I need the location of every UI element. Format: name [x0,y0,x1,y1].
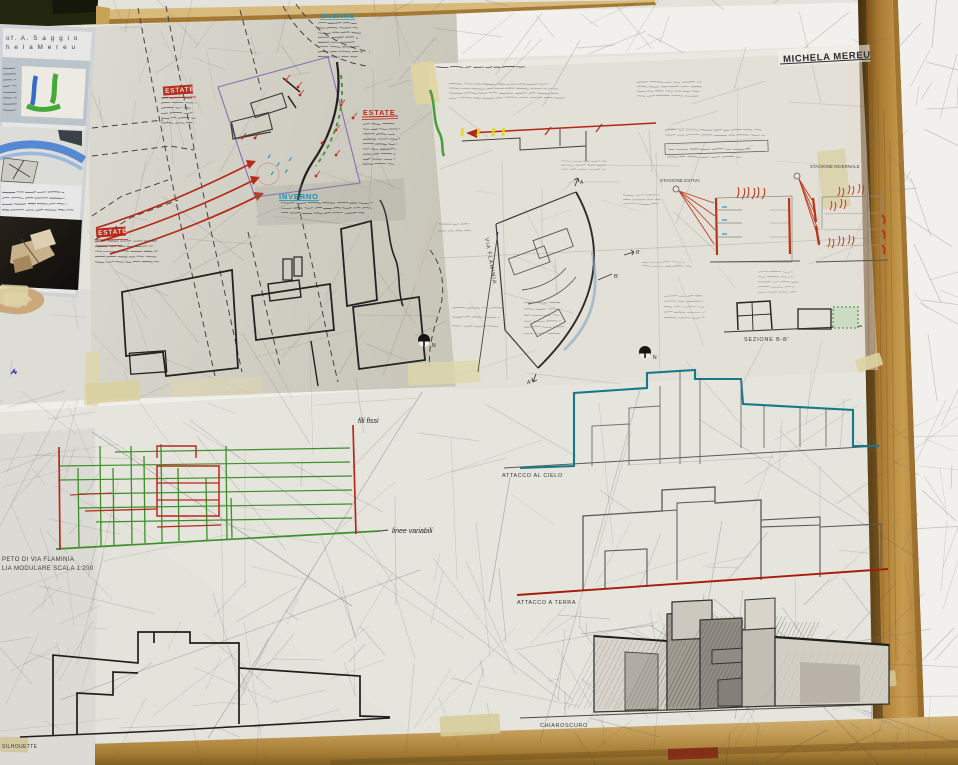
svg-text:fili fissi: fili fissi [358,418,379,425]
svg-text:INVERNO: INVERNO [320,13,355,20]
svg-text:B': B' [614,274,619,280]
svg-text:INVERNO: INVERNO [279,192,319,201]
svg-text:ATTACCO AL CIELO: ATTACCO AL CIELO [502,473,563,479]
svg-text:SILHOUETTE: SILHOUETTE [2,744,38,750]
svg-text:STAGIONE ESTIVA: STAGIONE ESTIVA [660,178,700,183]
svg-text:B': B' [636,250,640,256]
svg-text:SEZIONE B-B': SEZIONE B-B' [744,337,790,343]
svg-text:LIA MODULARE SCALA 1:200: LIA MODULARE SCALA 1:200 [2,566,94,572]
svg-text:ATTACCO A TERRA: ATTACCO A TERRA [517,600,576,606]
svg-text:CHIAROSCURO: CHIAROSCURO [540,723,588,729]
svg-text:N: N [653,355,657,361]
svg-text:N: N [432,343,436,349]
svg-text:STAGIONE INVERNALE: STAGIONE INVERNALE [810,164,860,169]
svg-text:linee variabili: linee variabili [392,528,433,535]
svg-text:A': A' [527,380,531,386]
svg-text:h e l a M e r e u: h e l a M e r e u [6,44,77,51]
svg-text:PETO DI VIA FLAMINIA: PETO DI VIA FLAMINIA [2,557,74,563]
svg-text:of. A. S a g g i o: of. A. S a g g i o [6,35,79,42]
